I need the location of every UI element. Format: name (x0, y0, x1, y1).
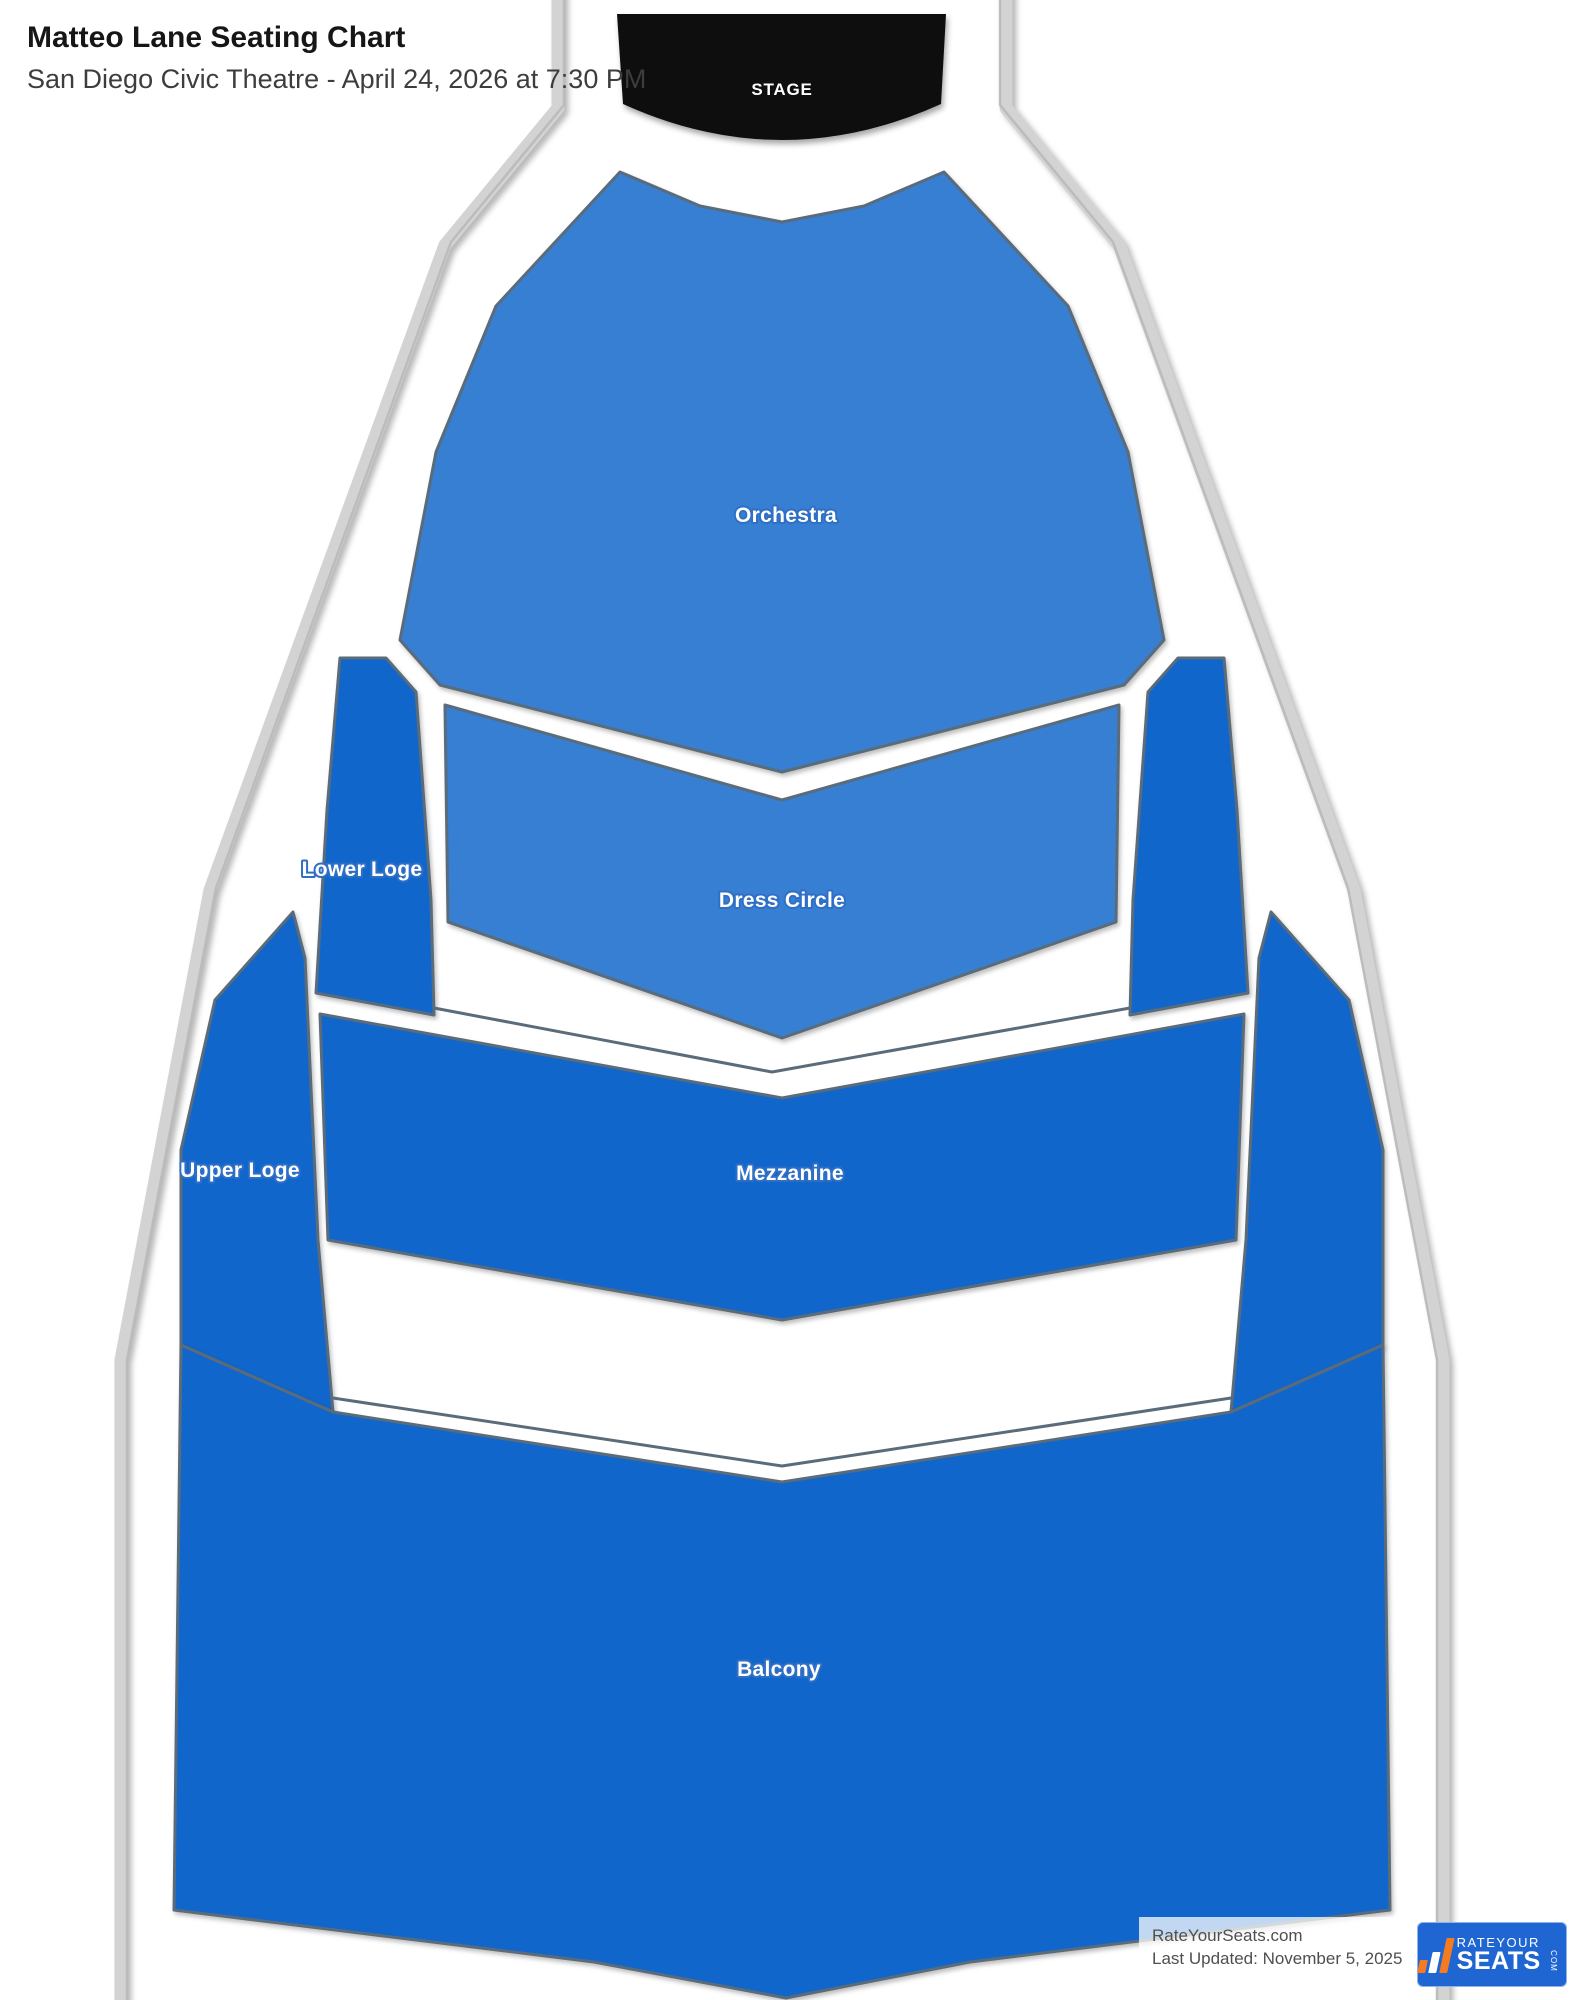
logo-bar-medium (1428, 1952, 1440, 1973)
watermark-box: RateYourSeats.com Last Updated: November… (1139, 1917, 1413, 1981)
section-label-orchestra: Orchestra (735, 504, 837, 527)
stage-label: STAGE (751, 80, 812, 99)
section-label-upper-loge-left: Upper Loge (180, 1159, 300, 1182)
section-label-mezzanine: Mezzanine (736, 1162, 844, 1185)
section-upper-loge-right[interactable] (1231, 912, 1383, 1412)
seating-chart-page: Matteo Lane Seating Chart San Diego Civi… (0, 0, 1580, 2000)
header: Matteo Lane Seating Chart San Diego Civi… (27, 20, 646, 97)
logo-text: RATEYOUR SEATS COM (1457, 1936, 1564, 1974)
logo-text-com: COM (1548, 1950, 1556, 1972)
logo-bar-small (1417, 1960, 1428, 1973)
stage-shape (617, 14, 946, 140)
section-orchestra[interactable] (400, 172, 1164, 772)
rateyourseats-logo[interactable]: RATEYOUR SEATS COM (1417, 1922, 1567, 1987)
section-label-lower-loge-left: Lower Loge (302, 858, 423, 881)
logo-text-seats: SEATS (1457, 1949, 1541, 1974)
logo-bars-icon (1417, 1937, 1455, 1973)
section-lower-loge-left[interactable] (316, 658, 434, 1015)
section-label-balcony: Balcony (737, 1658, 821, 1681)
section-lower-loge-right[interactable] (1130, 658, 1248, 1015)
logo-bar-large (1439, 1938, 1454, 1973)
watermark-updated: Last Updated: November 5, 2025 (1152, 1947, 1413, 1970)
section-label-dress-circle: Dress Circle (719, 889, 845, 912)
page-title: Matteo Lane Seating Chart (27, 20, 646, 56)
watermark-site: RateYourSeats.com (1152, 1924, 1413, 1947)
venue-seating-map: STAGEOrchestraDress CircleLower LogeUppe… (0, 0, 1580, 2000)
event-subtitle: San Diego Civic Theatre - April 24, 2026… (27, 62, 646, 97)
